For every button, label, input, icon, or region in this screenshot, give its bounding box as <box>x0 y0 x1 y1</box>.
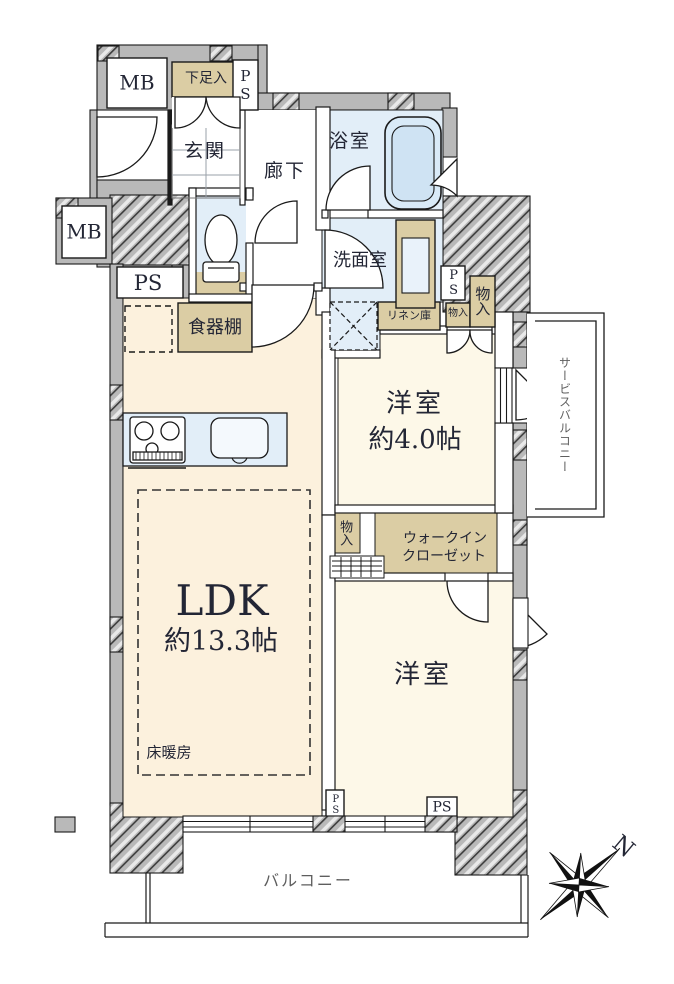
bathtub <box>385 117 441 209</box>
label-linen: リネン庫 <box>387 309 431 323</box>
stove-icon <box>128 417 186 468</box>
label-ps-top: PS <box>236 67 255 103</box>
label-mb-top: MB <box>119 71 154 96</box>
kitchen <box>123 413 287 468</box>
sink-icon <box>211 418 268 463</box>
label-closet-small: 物入 <box>448 308 468 321</box>
label-balcony: バルコニー <box>263 871 353 891</box>
bedroom1-window <box>495 368 512 423</box>
label-closet-tall: 物入 <box>473 286 492 316</box>
label-shoe-cabinet: 下足入 <box>185 70 227 88</box>
front-door-swing <box>97 117 157 177</box>
label-bedroom2: 洋室 <box>394 659 452 692</box>
label-entrance: 玄関 <box>184 140 226 164</box>
label-bedroom1: 洋室 <box>386 388 444 421</box>
ldk-floor <box>123 298 322 817</box>
label-bedroom1-size: 約4.0帖 <box>368 424 461 457</box>
label-ldk-size: 約13.3帖 <box>164 625 278 659</box>
toilet <box>203 215 239 282</box>
label-ps-bottom-right: PS <box>432 799 451 817</box>
label-ps-bottom-left: PS <box>329 794 342 816</box>
label-ps-right: PS <box>445 268 461 298</box>
label-wic-line1: ウォークイン <box>403 530 487 548</box>
label-wic-line2: クローゼット <box>402 548 486 566</box>
label-service-balcony: サービスバルコニー <box>557 357 572 474</box>
compass-icon <box>540 848 620 920</box>
label-closet-mid: 物入 <box>336 520 352 546</box>
label-ldk: LDK <box>176 575 269 628</box>
label-dish-cabinet: 食器棚 <box>188 317 242 340</box>
wash-basin <box>402 238 429 293</box>
label-bath: 浴室 <box>329 130 371 154</box>
label-washroom: 洗面室 <box>333 250 387 273</box>
washing-machine-pan <box>330 302 377 350</box>
shelf-strip <box>330 556 384 578</box>
label-corridor: 廊下 <box>264 160 306 184</box>
label-ps-left: PS <box>134 270 163 296</box>
label-mb-left: MB <box>66 220 101 245</box>
floorplan-canvas: MB 下足入 PS 玄関 廊下 浴室 MB PS 洗面室 食器棚 リネン庫 PS… <box>0 0 674 984</box>
refrigerator-space <box>125 306 172 352</box>
label-floor-heating: 床暖房 <box>146 744 191 763</box>
